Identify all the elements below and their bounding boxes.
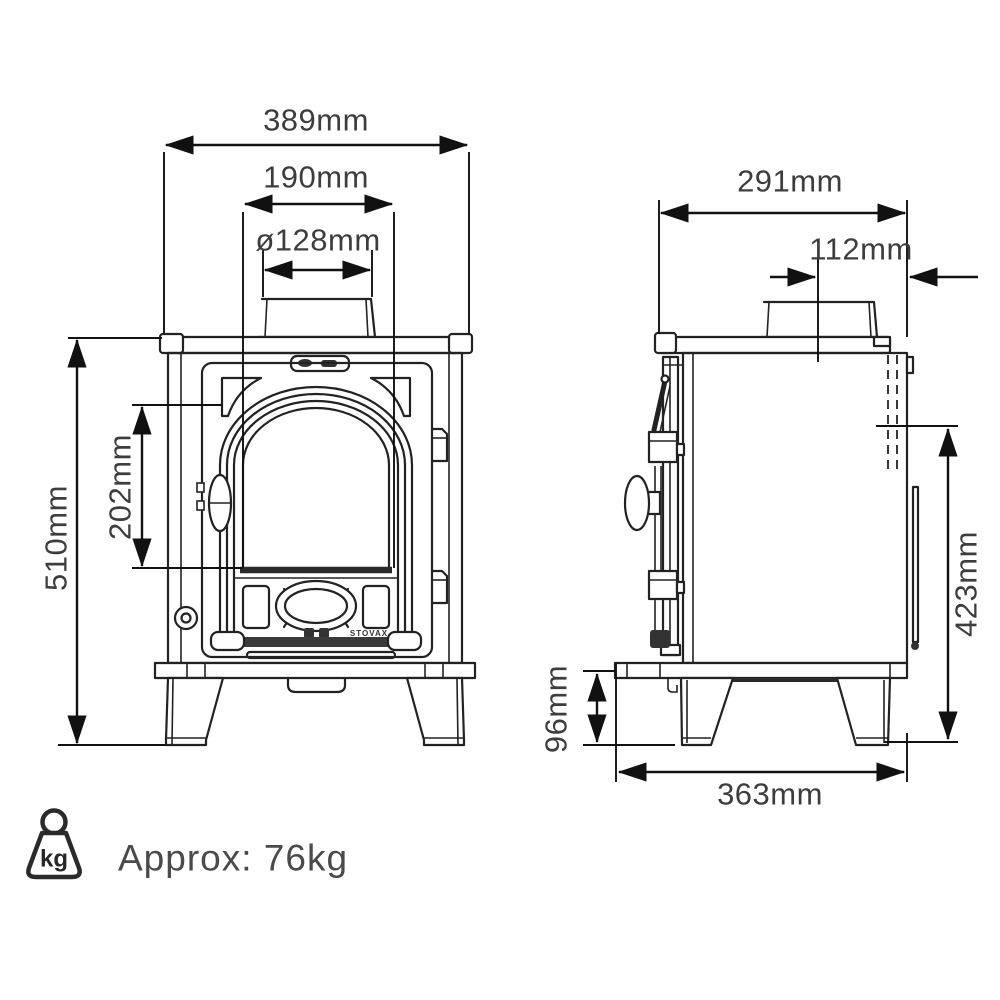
front-left-spandrel — [222, 378, 261, 416]
front-door-hinges — [432, 429, 447, 603]
front-right-spandrel — [371, 378, 410, 416]
dim-label-flue-diameter: ø128mm — [255, 223, 380, 258]
dim-label-top-plate-width: 190mm — [263, 160, 369, 195]
side-door-hook — [668, 678, 677, 692]
weight-row: kg Approx: 76kg — [28, 811, 348, 879]
kg-icon-label: kg — [40, 846, 68, 873]
dim-label-base-depth: 363mm — [717, 777, 823, 812]
side-body — [683, 353, 907, 663]
front-air-knob — [175, 607, 197, 629]
dim-label-rear-flue-height: 423mm — [949, 531, 984, 637]
brand-text: STOVAX — [350, 629, 388, 638]
front-base-tab — [288, 678, 345, 692]
dim-label-overall-depth: 291mm — [737, 164, 843, 199]
front-base-plate — [155, 663, 475, 678]
dim-label-clearance-height: 96mm — [539, 665, 574, 753]
side-legs — [681, 678, 890, 745]
front-flue-collar — [258, 299, 375, 337]
side-base-plate — [615, 663, 907, 678]
front-top-plate — [176, 337, 458, 353]
dim-label-overall-height: 510mm — [39, 485, 74, 591]
dim-label-overall-width: 389mm — [263, 103, 369, 138]
diagram-svg: STOVAX — [0, 0, 1000, 1000]
side-top-plate — [660, 337, 890, 353]
approx-weight-text: Approx: 76kg — [118, 838, 348, 879]
side-rear-heat-shield — [911, 487, 919, 650]
dimension-flue-diameter: ø128mm — [255, 223, 380, 298]
side-bottom-latch — [650, 630, 670, 648]
front-lower-panel: STOVAX — [211, 581, 421, 658]
kg-weight-icon: kg — [28, 811, 79, 878]
stove-dimension-diagram: STOVAX — [0, 0, 1000, 1000]
dim-label-window-height: 202mm — [103, 434, 138, 540]
front-view-drawing: STOVAX — [155, 299, 475, 745]
side-view-drawing — [615, 302, 919, 745]
dimension-overall-height: 510mm — [39, 338, 167, 745]
dimension-rear-flue-height: 423mm — [876, 426, 984, 742]
dim-label-flue-centre-offset: 112mm — [809, 232, 913, 267]
front-legs — [166, 678, 464, 745]
side-flue-collar — [761, 302, 877, 337]
